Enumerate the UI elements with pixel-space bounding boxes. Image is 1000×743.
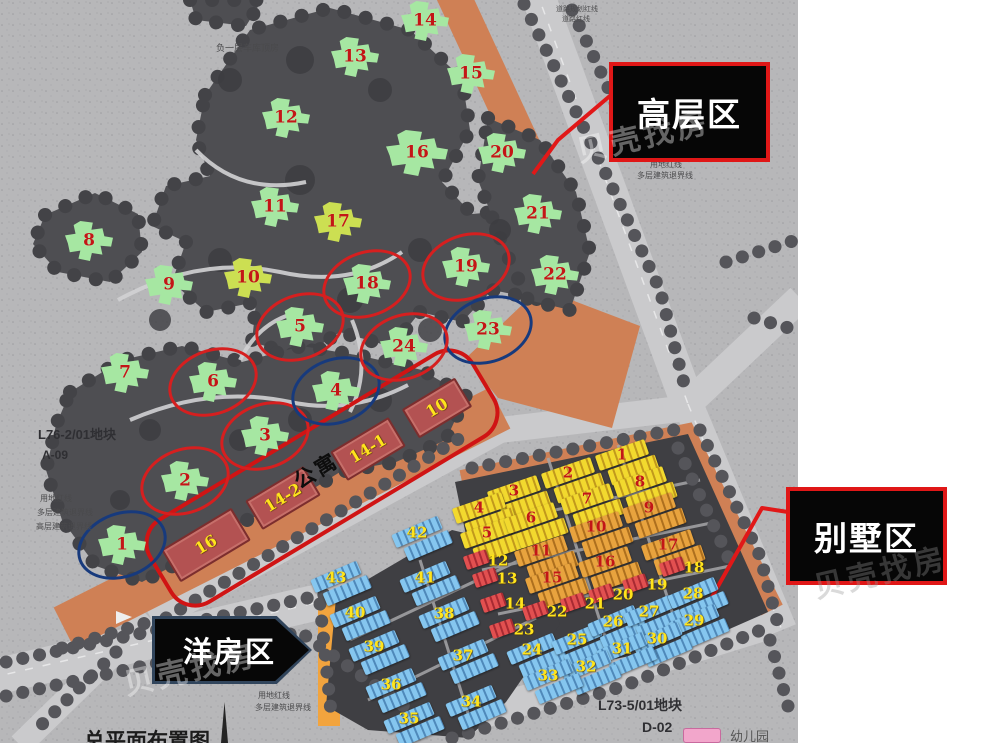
map-text: 多层建筑退界线 — [37, 509, 93, 518]
map-text: 用地红线 — [650, 161, 682, 170]
building-number: 28 — [683, 587, 704, 602]
zone-label-garden-text: 洋房区 — [155, 619, 309, 681]
building-number: 13 — [343, 49, 367, 66]
legend-label: 幼儿园 — [730, 726, 769, 743]
building-number: 6 — [207, 374, 219, 391]
building-number: 3 — [509, 484, 519, 499]
map-text: 道路规划红线 — [556, 6, 598, 14]
building-number: 18 — [355, 276, 379, 293]
zone-label-highrise-text: 高层区 — [637, 88, 742, 136]
building-number: 1 — [116, 537, 128, 554]
building-number: 19 — [454, 259, 478, 276]
building-number: 34 — [461, 695, 482, 710]
building-number: 5 — [482, 526, 492, 541]
building-number: 17 — [658, 538, 679, 553]
building-number: 31 — [612, 642, 633, 657]
building-number: 22 — [543, 267, 567, 284]
building-number: 7 — [119, 365, 131, 382]
building-number: 11 — [531, 544, 552, 559]
legend: 幼儿园 — [683, 726, 769, 743]
building-number: 20 — [613, 588, 634, 603]
building-number: 29 — [684, 614, 705, 629]
building-number: 22 — [547, 605, 568, 620]
building-number: 13 — [497, 572, 518, 587]
map-text: 多层建筑退界线 — [637, 172, 693, 181]
building-number: 17 — [326, 214, 350, 231]
building-number: 2 — [179, 473, 191, 490]
map-text: 用地红线 — [258, 692, 290, 701]
map-text: A-09 — [42, 449, 68, 462]
building-number: 4 — [474, 501, 484, 516]
map-text: 负一层车库顶房 — [216, 44, 279, 54]
building-number: 7 — [582, 492, 592, 507]
map-text: 用地红线 — [40, 495, 72, 504]
building-number: 27 — [639, 605, 660, 620]
building-number: 12 — [274, 110, 298, 127]
zone-label-villa: 别墅区 — [786, 487, 947, 585]
building-number: 8 — [83, 233, 95, 250]
building-number: 24 — [392, 339, 416, 356]
building-number: 11 — [263, 199, 287, 216]
building-number: 16 — [405, 145, 429, 162]
building-number: 10 — [236, 270, 260, 287]
map-text: D-02 — [642, 720, 672, 735]
building-number: 21 — [526, 206, 550, 223]
legend-swatch-kindergarten — [683, 728, 721, 743]
building-number: 32 — [576, 660, 597, 675]
building-number: 30 — [647, 632, 668, 647]
apartment-block-number: 16 — [192, 532, 219, 557]
site-plan-screenshot: 公寓 1614-214-110 123456789101112131415161… — [0, 0, 1000, 743]
building-number: 12 — [488, 554, 509, 569]
building-number: 25 — [567, 633, 588, 648]
building-number: 41 — [415, 571, 436, 586]
building-number: 1 — [617, 448, 627, 463]
building-number: 21 — [585, 597, 606, 612]
building-number: 14 — [413, 13, 437, 30]
building-number: 3 — [259, 428, 271, 445]
building-number: 9 — [644, 501, 654, 516]
zone-label-villa-text: 别墅区 — [814, 512, 919, 560]
building-number: 37 — [453, 649, 474, 664]
building-number: 6 — [526, 511, 536, 526]
building-number: 33 — [538, 669, 559, 684]
building-number: 15 — [542, 571, 563, 586]
building-number: 2 — [563, 466, 573, 481]
building-number: 40 — [345, 606, 366, 621]
building-number: 38 — [434, 607, 455, 622]
apartment-block-number: 10 — [423, 395, 450, 420]
building-number: 35 — [399, 712, 420, 727]
building-number: 4 — [330, 383, 342, 400]
building-number: 39 — [364, 640, 385, 655]
building-number: 23 — [514, 623, 535, 638]
building-number: 5 — [294, 319, 306, 336]
zone-label-highrise: 高层区 — [609, 62, 770, 162]
building-number: 43 — [326, 571, 347, 586]
map-text: L76-2/01地块 — [38, 428, 116, 442]
building-number: 36 — [381, 678, 402, 693]
map-text: 多层建筑退界线 — [255, 704, 311, 713]
building-number: 23 — [476, 322, 500, 339]
building-number: 10 — [586, 520, 607, 535]
map-text: L73-5/01地块 — [598, 698, 682, 713]
building-number: 15 — [459, 66, 483, 83]
building-number: 16 — [595, 555, 616, 570]
building-number: 24 — [522, 643, 543, 658]
map-text: 道路红线 — [562, 16, 590, 24]
building-number: 9 — [163, 277, 175, 294]
map-text: 总平面布置图 — [84, 730, 210, 743]
building-number: 8 — [635, 475, 645, 490]
building-number: 20 — [490, 145, 514, 162]
building-number: 18 — [684, 561, 705, 576]
map-text: 高层建筑退界线 — [36, 523, 92, 532]
building-number: 42 — [407, 526, 428, 541]
building-number: 19 — [647, 578, 668, 593]
building-number: 26 — [603, 615, 624, 630]
